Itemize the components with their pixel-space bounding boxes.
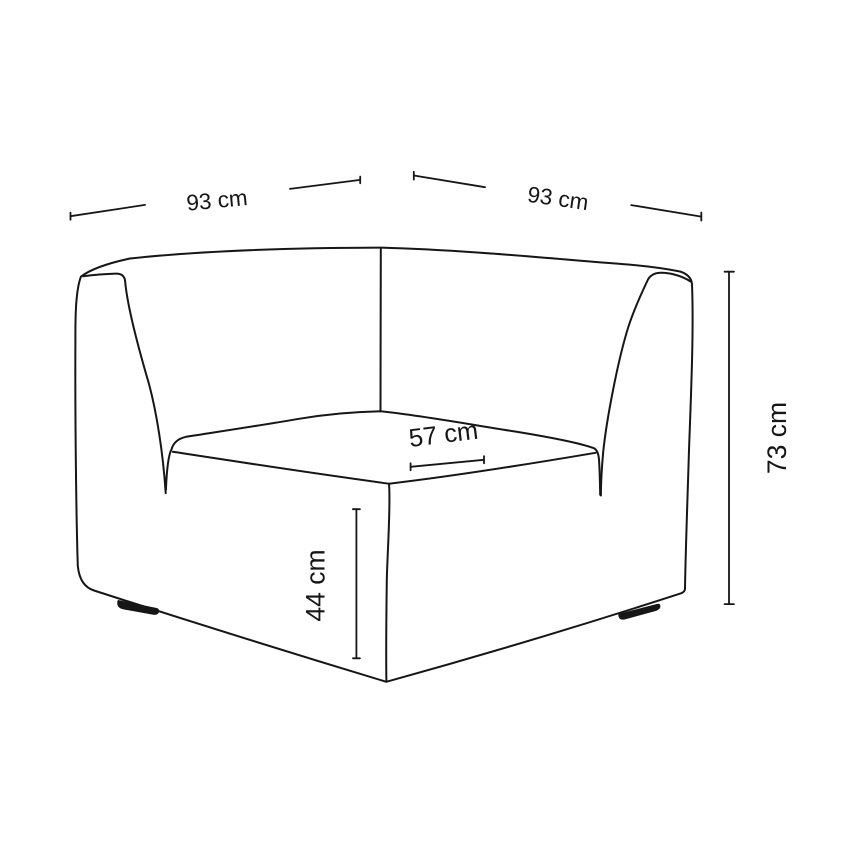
- svg-text:44 cm: 44 cm: [301, 549, 331, 621]
- svg-text:73 cm: 73 cm: [762, 402, 792, 474]
- svg-text:93 cm: 93 cm: [526, 182, 590, 215]
- svg-text:93 cm: 93 cm: [185, 185, 248, 216]
- svg-text:57 cm: 57 cm: [407, 417, 479, 453]
